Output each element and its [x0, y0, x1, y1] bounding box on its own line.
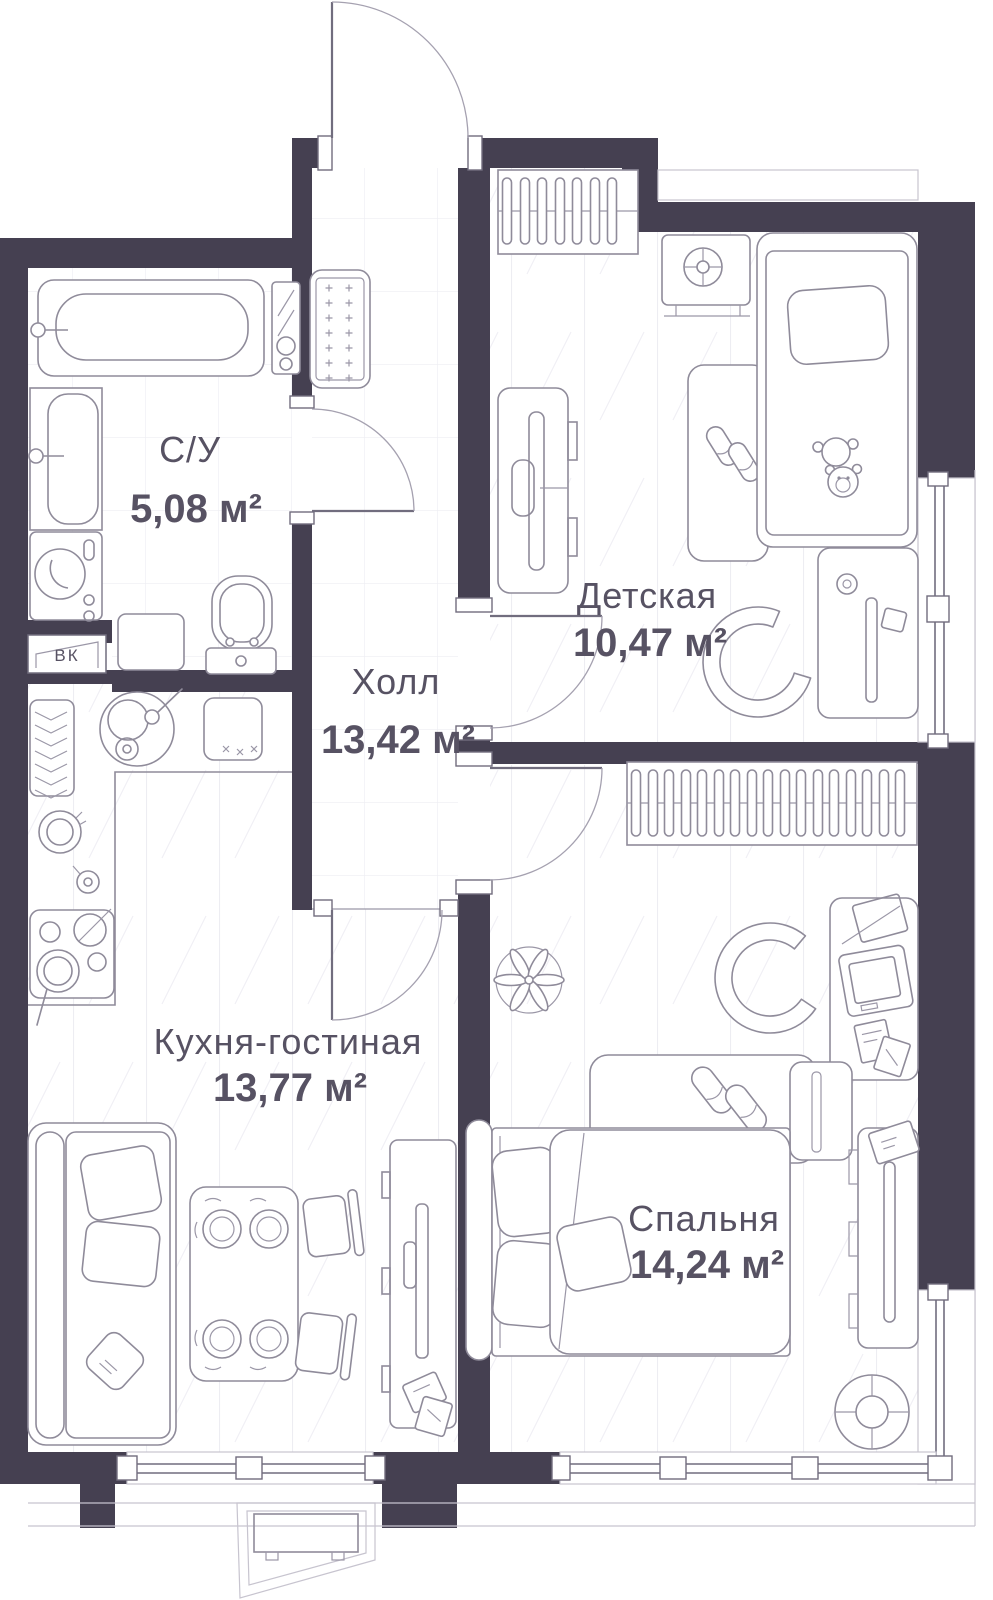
towel-shelf	[272, 282, 300, 374]
dish-rack	[30, 700, 74, 798]
hall-area: 13,42 м²	[321, 718, 475, 762]
kitchen-living-area: 13,77 м²	[213, 1066, 367, 1110]
bedroom-wardrobe	[627, 762, 917, 845]
toilet	[206, 576, 276, 674]
bath-cabinet	[118, 614, 184, 670]
doormat	[310, 270, 370, 388]
window-bedroom-bottom	[552, 1452, 952, 1484]
fan-icon	[697, 261, 709, 273]
dining-chair	[294, 1308, 357, 1380]
window-nursery	[918, 472, 975, 748]
floor-plan-canvas: С/У 5,08 м² Холл 13,42 м² Детская 10,47 …	[0, 0, 993, 1600]
tv-stand	[382, 1140, 456, 1437]
bedroom-bed	[466, 1120, 790, 1360]
nursery-dresser	[498, 388, 577, 593]
pillow	[787, 285, 890, 366]
hall-name: Холл	[352, 661, 441, 702]
floor-lamp-icon	[835, 1375, 909, 1449]
nursery-name: Детская	[577, 575, 717, 616]
entrance-door	[318, 2, 482, 170]
bathtub	[31, 280, 264, 376]
bathroom-name: С/У	[159, 429, 221, 470]
bedroom-desk	[830, 894, 918, 1080]
tv	[416, 1204, 428, 1358]
bedroom-area: 14,24 м²	[630, 1243, 784, 1287]
washing-machine	[30, 532, 102, 621]
nursery-bed	[757, 233, 917, 547]
sofa	[28, 1123, 176, 1445]
dining-table	[190, 1187, 298, 1381]
balcony	[237, 1503, 375, 1598]
laptop	[838, 945, 914, 1018]
headboard	[466, 1120, 492, 1360]
balcony-unit	[254, 1514, 358, 1552]
vent-shaft-label: ВК	[54, 646, 79, 665]
ledge-outline	[658, 170, 918, 200]
bedroom-dresser	[849, 1120, 920, 1348]
fan-table	[662, 235, 750, 316]
floor-plan: С/У 5,08 м² Холл 13,42 м² Детская 10,47 …	[0, 0, 993, 1600]
nursery-desk	[818, 548, 918, 718]
cutting-board	[204, 698, 262, 760]
nursery-area: 10,47 м²	[573, 621, 727, 665]
nursery-wardrobe	[498, 170, 638, 254]
bathroom-sink	[29, 388, 102, 530]
kitchen-living-name: Кухня-гостиная	[154, 1021, 423, 1062]
bedroom-name: Спальня	[628, 1198, 780, 1239]
nightstand	[790, 1062, 852, 1160]
bathroom-area: 5,08 м²	[130, 487, 262, 531]
window-kitchen	[117, 1452, 385, 1484]
dining-chair	[302, 1189, 365, 1261]
